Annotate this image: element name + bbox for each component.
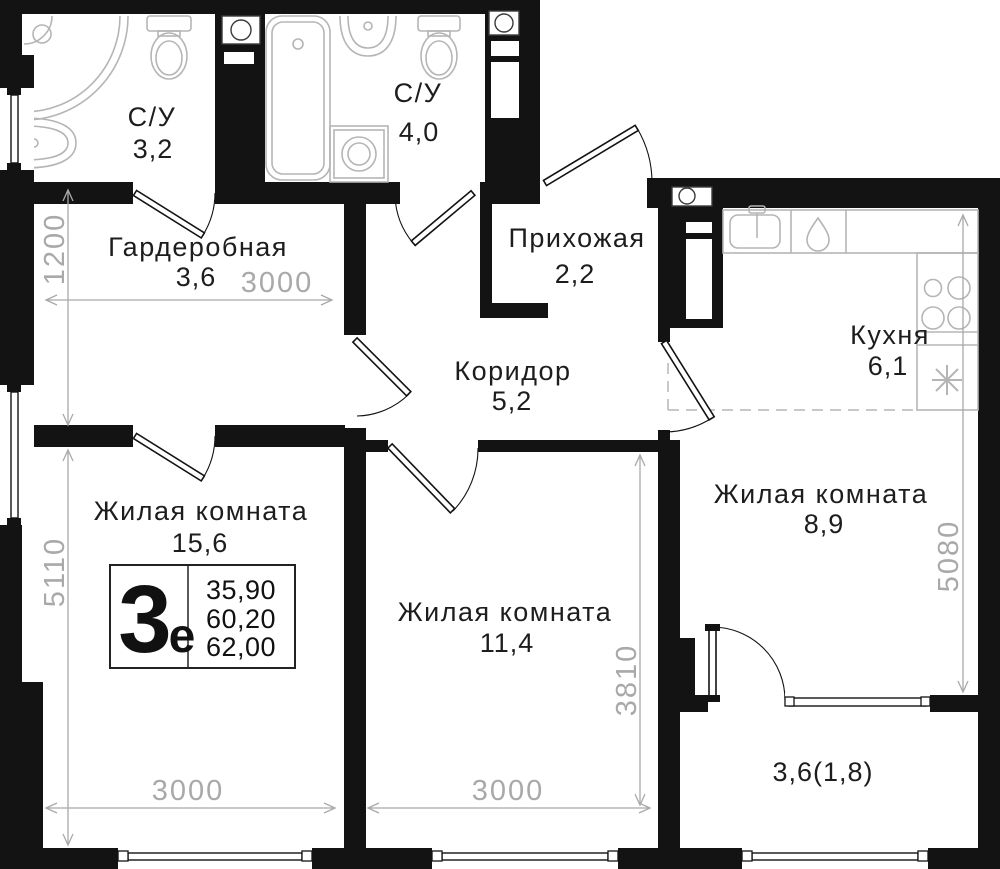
room-label-living3: Жилая комната 8,9 xyxy=(714,479,929,539)
dim-label: 3000 xyxy=(152,775,225,807)
svg-text:2,2: 2,2 xyxy=(555,259,596,289)
svg-text:Жилая комната: Жилая комната xyxy=(94,496,309,526)
room-label-balcony: 3,6(1,8) xyxy=(772,757,873,787)
svg-text:Жилая комната: Жилая комната xyxy=(398,597,613,627)
door-living1 xyxy=(353,338,411,416)
dimension-3810: 3810 xyxy=(611,455,645,805)
room-label-living2: Жилая комната 11,4 xyxy=(398,597,613,658)
door-balcony xyxy=(705,624,785,702)
door-living2 xyxy=(388,444,478,513)
dimension-5080: 5080 xyxy=(933,215,968,692)
area-value-2: 60,20 xyxy=(206,604,276,634)
svg-text:Коридор: Коридор xyxy=(454,356,571,386)
vent-shaft-right xyxy=(489,11,519,118)
window xyxy=(432,848,618,869)
door-kitchen xyxy=(661,340,714,432)
dim-label: 3810 xyxy=(611,644,643,717)
dim-label: 5110 xyxy=(39,537,71,607)
balcony-window xyxy=(785,693,930,712)
dimension-3000-living2: 3000 xyxy=(368,775,650,813)
floor-plan: 1200 3000 5110 3000 3000 3810 5080 С xyxy=(0,0,1000,869)
svg-text:15,6: 15,6 xyxy=(172,528,229,558)
door-entrance xyxy=(543,125,652,185)
room-label-hall: Прихожая 2,2 xyxy=(508,223,645,289)
fridge-icon xyxy=(932,365,962,395)
washing-machine-icon xyxy=(330,126,388,182)
door-wardrobe xyxy=(133,433,215,480)
svg-text:3,6: 3,6 xyxy=(176,262,217,292)
kitchen-sink-icon xyxy=(730,206,780,248)
svg-text:6,1: 6,1 xyxy=(868,351,909,381)
svg-text:С/У: С/У xyxy=(394,78,443,108)
svg-text:5,2: 5,2 xyxy=(492,386,533,416)
svg-text:Прихожая: Прихожая xyxy=(508,223,645,253)
apartment-info-box: 3 е 35,90 60,20 62,00 xyxy=(110,565,295,673)
dim-label: 3000 xyxy=(241,267,314,299)
area-value-1: 35,90 xyxy=(206,575,276,605)
dimension-5110: 5110 xyxy=(39,450,73,845)
apartment-type-letter: е xyxy=(169,610,196,663)
svg-text:С/У: С/У xyxy=(128,102,177,132)
svg-text:Жилая комната: Жилая комната xyxy=(714,479,929,509)
dim-label: 5080 xyxy=(933,520,965,593)
room-label-su2: С/У 4,0 xyxy=(394,78,443,147)
window xyxy=(0,385,34,525)
door-su2 xyxy=(395,191,475,246)
area-value-3: 62,00 xyxy=(206,632,276,662)
window xyxy=(0,88,34,170)
dim-label: 1200 xyxy=(39,213,71,286)
svg-text:11,4: 11,4 xyxy=(480,628,535,658)
svg-text:4,0: 4,0 xyxy=(399,117,440,147)
window xyxy=(118,848,312,869)
bathtub-icon xyxy=(266,16,330,180)
svg-text:Кухня: Кухня xyxy=(850,320,930,350)
door-su1 xyxy=(133,190,215,237)
window xyxy=(742,848,928,869)
apartment-type-number: 3 xyxy=(118,566,171,673)
toilet-icon xyxy=(147,16,191,79)
toilet-icon xyxy=(418,16,460,79)
room-label-living1: Жилая комната 15,6 xyxy=(94,496,309,558)
svg-text:3,6(1,8): 3,6(1,8) xyxy=(772,757,873,787)
svg-text:8,9: 8,9 xyxy=(804,509,845,539)
svg-text:3,2: 3,2 xyxy=(133,134,174,164)
dimension-3000-living1: 3000 xyxy=(46,775,335,813)
room-label-su1: С/У 3,2 xyxy=(128,102,177,164)
shower-icon xyxy=(24,16,128,120)
dishwasher-drop-icon xyxy=(807,218,829,251)
dim-label: 3000 xyxy=(472,775,545,807)
room-label-kitchen: Кухня 6,1 xyxy=(850,320,930,381)
dimension-1200: 1200 xyxy=(39,190,73,425)
sink-icon xyxy=(340,16,396,56)
svg-text:Гардеробная: Гардеробная xyxy=(108,232,288,262)
room-label-corridor: Коридор 5,2 xyxy=(454,356,571,416)
